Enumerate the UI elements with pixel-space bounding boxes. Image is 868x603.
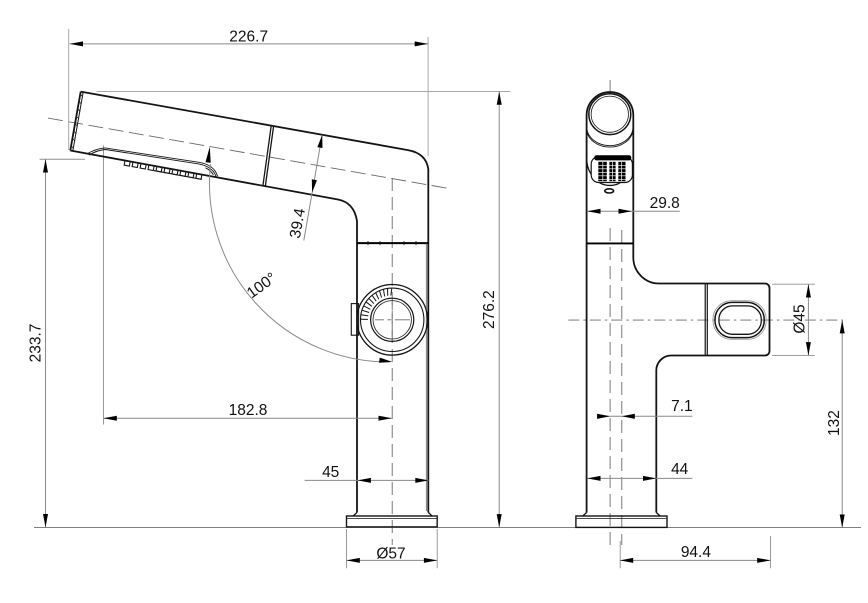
svg-text:276.2: 276.2 xyxy=(481,290,498,329)
svg-text:132: 132 xyxy=(826,410,843,436)
svg-text:29.8: 29.8 xyxy=(650,195,680,212)
svg-text:44: 44 xyxy=(671,461,689,478)
svg-text:94.4: 94.4 xyxy=(681,544,712,561)
svg-text:Ø45: Ø45 xyxy=(792,304,809,333)
svg-text:Ø57: Ø57 xyxy=(376,545,405,562)
svg-text:45: 45 xyxy=(322,464,339,481)
svg-text:100°: 100° xyxy=(244,270,280,303)
svg-text:226.7: 226.7 xyxy=(229,29,268,46)
svg-text:233.7: 233.7 xyxy=(28,324,45,363)
svg-text:182.8: 182.8 xyxy=(229,402,268,419)
svg-text:7.1: 7.1 xyxy=(671,398,693,415)
svg-text:39.4: 39.4 xyxy=(287,207,309,240)
